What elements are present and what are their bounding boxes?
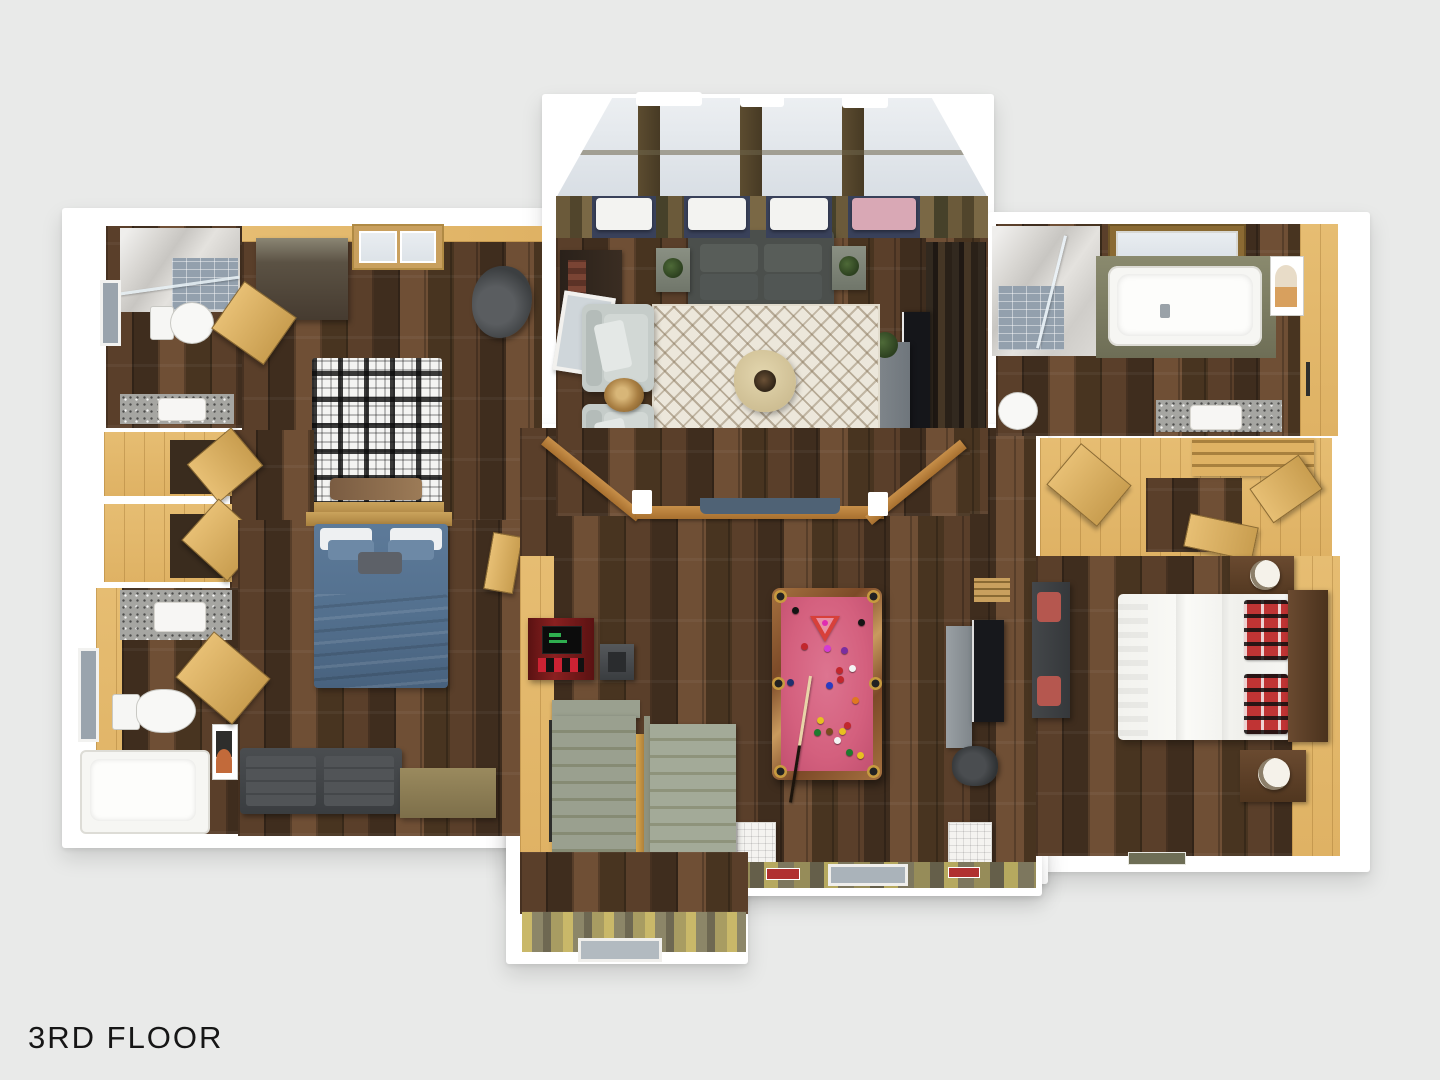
roof-cap xyxy=(740,94,784,107)
plant xyxy=(663,258,683,278)
doormat xyxy=(766,868,800,880)
window xyxy=(78,648,99,742)
railing-post2 xyxy=(868,492,888,516)
pool-ball xyxy=(837,676,844,683)
stool xyxy=(600,644,634,680)
shower-marble xyxy=(992,226,1100,356)
pool-ball xyxy=(814,729,821,736)
office-chair xyxy=(952,746,998,786)
navy-sofa-back xyxy=(700,498,840,514)
accent-pillow xyxy=(358,552,402,574)
bathroom-right-east-wall xyxy=(1300,224,1338,436)
pillow xyxy=(1037,676,1061,706)
toilet xyxy=(996,390,1040,432)
plaid-pillow xyxy=(1244,600,1288,660)
headboard xyxy=(1288,590,1328,742)
railing-post2 xyxy=(632,490,652,514)
roof-beam xyxy=(638,98,660,198)
deck-door-glass xyxy=(578,938,662,962)
arcade-machine xyxy=(528,618,594,680)
staircase-down xyxy=(552,716,636,852)
gray-sofa xyxy=(688,230,834,310)
futon-sofa xyxy=(240,748,402,814)
vanity-counter xyxy=(120,394,234,424)
lamp xyxy=(1258,758,1290,790)
towel-hook xyxy=(1306,362,1310,396)
sink xyxy=(158,398,206,421)
pool-ball xyxy=(841,647,848,654)
pool-ball xyxy=(834,737,841,744)
doormat xyxy=(948,867,980,878)
window-seat-cushion xyxy=(770,198,828,230)
window xyxy=(100,280,121,346)
plaid-pillow xyxy=(1244,674,1288,734)
roof-beam xyxy=(842,98,864,198)
window-seat-cushion xyxy=(688,198,746,230)
skylight-window xyxy=(352,224,444,270)
window-seat-cushion xyxy=(852,198,916,230)
sink xyxy=(154,602,206,632)
floor-plan xyxy=(0,0,1440,1080)
pool-ball xyxy=(826,682,833,689)
pocket xyxy=(867,765,880,778)
bench-sofa xyxy=(1032,582,1070,718)
plaid-bed-pillows xyxy=(330,478,422,500)
stump-table xyxy=(604,378,644,412)
toilet xyxy=(112,686,198,734)
plant xyxy=(839,256,859,276)
pool-ball xyxy=(849,665,856,672)
floor-label: 3RD FLOOR xyxy=(28,1020,223,1056)
pool-ball xyxy=(817,717,824,724)
stair-hall-floor xyxy=(520,852,748,914)
staircase-wide xyxy=(650,724,736,866)
wall-art xyxy=(212,724,238,780)
skylight-roof xyxy=(556,98,988,198)
pocket xyxy=(867,590,880,603)
pool-ball xyxy=(787,679,794,686)
nine-ball xyxy=(822,620,828,626)
pool-ball xyxy=(836,667,843,674)
doormat xyxy=(1128,852,1186,865)
stair-handrail xyxy=(636,734,644,854)
pool-ball xyxy=(846,749,853,756)
deck-window xyxy=(828,864,908,886)
pocket xyxy=(774,765,787,778)
pool-ball xyxy=(852,697,859,704)
stair-handrail-dark xyxy=(549,720,552,842)
roof-cap xyxy=(636,92,702,106)
pocket xyxy=(774,590,787,603)
vanity-counter xyxy=(1156,400,1282,432)
bathtub xyxy=(1108,266,1262,346)
pillow xyxy=(1037,592,1061,622)
coffee-table xyxy=(734,350,796,412)
window-seat-cushion xyxy=(596,198,652,230)
dresser xyxy=(400,768,496,818)
lamp xyxy=(1250,560,1280,590)
desk-monitor xyxy=(972,620,1004,722)
wood-shelf xyxy=(974,578,1010,602)
sink xyxy=(1190,405,1242,430)
toilet xyxy=(150,300,214,344)
shower-tile-floor xyxy=(998,286,1064,350)
pool-ball xyxy=(792,607,799,614)
roof-beam xyxy=(740,98,762,198)
bathtub xyxy=(80,750,210,834)
pool-ball xyxy=(801,643,808,650)
pool-ball xyxy=(858,619,865,626)
blue-bed xyxy=(314,524,448,688)
pool-ball xyxy=(826,728,833,735)
pool-ball xyxy=(844,722,851,729)
roof-cap xyxy=(842,95,888,108)
desk xyxy=(946,626,972,748)
pool-ball xyxy=(824,645,831,652)
pocket xyxy=(869,677,882,690)
pool-ball xyxy=(839,728,846,735)
pocket xyxy=(772,677,785,690)
wall-art xyxy=(1270,256,1304,316)
pool-ball xyxy=(857,752,864,759)
